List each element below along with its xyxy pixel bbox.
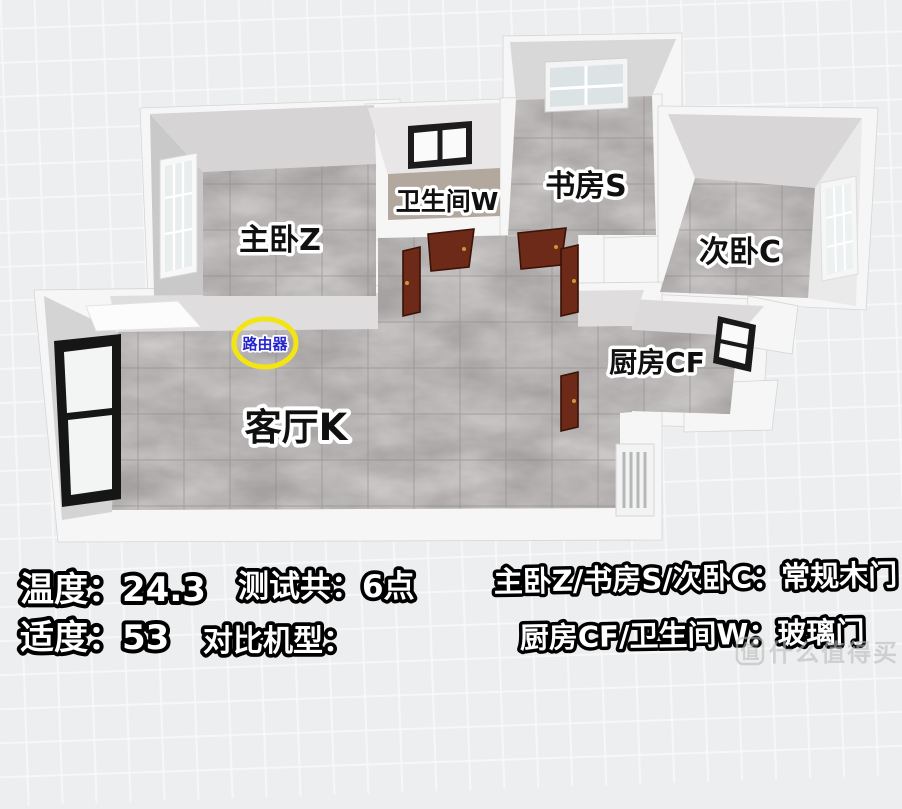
study-window xyxy=(545,58,628,112)
comparison-model-label: 对比机型： xyxy=(203,624,353,659)
kitchen-window xyxy=(713,316,756,372)
temperature-reading: 温度：24.3 xyxy=(20,570,206,610)
room-label-kitchen: 厨房CF xyxy=(609,346,705,379)
test-points-reading: 测试共：6点 xyxy=(238,569,415,605)
watermark-logo: 值 xyxy=(740,640,759,663)
radiator-window xyxy=(616,444,654,516)
room-label-living-room: 客厅K xyxy=(245,406,349,449)
floor-tile-grout xyxy=(0,0,902,560)
temperature-label: 温度： xyxy=(20,570,122,610)
room-label-second-bedroom: 次卧C xyxy=(699,235,781,270)
humidity-label: 适度： xyxy=(20,618,122,658)
living-room-window xyxy=(54,334,121,507)
wood-door-hall-right-upper xyxy=(561,245,578,316)
humidity-value: 53 xyxy=(122,618,169,658)
floorplan-canvas: 路由器 主卧Z 卫生间W 书房S 次卧C 厨房CF 客厅K 温度：24.3 测试… xyxy=(0,0,902,677)
wood-door-study xyxy=(518,228,566,269)
wood-door-master-bedroom xyxy=(403,247,420,316)
room-label-study: 书房S xyxy=(545,169,627,204)
second-bedroom-window xyxy=(820,176,858,281)
room-label-master-bedroom: 主卧Z xyxy=(239,223,321,258)
humidity-reading: 适度：53 xyxy=(20,618,169,658)
watermark-text: 什么值得买 xyxy=(769,639,899,667)
temperature-value: 24.3 xyxy=(122,570,206,610)
room-label-bathroom: 卫生间W xyxy=(396,187,499,216)
master-bedroom-window xyxy=(160,153,197,279)
wood-door-hall-right-lower xyxy=(561,372,578,431)
test-points-value: 6点 xyxy=(362,569,415,605)
floors xyxy=(0,0,902,560)
door-legend-wood: 主卧Z/书房S/次卧C：常规木门 xyxy=(494,558,898,599)
router-label: 路由器 xyxy=(242,335,288,353)
wood-door-bathroom xyxy=(428,229,474,271)
test-points-label: 测试共： xyxy=(238,569,362,605)
bathroom-window xyxy=(408,121,472,169)
